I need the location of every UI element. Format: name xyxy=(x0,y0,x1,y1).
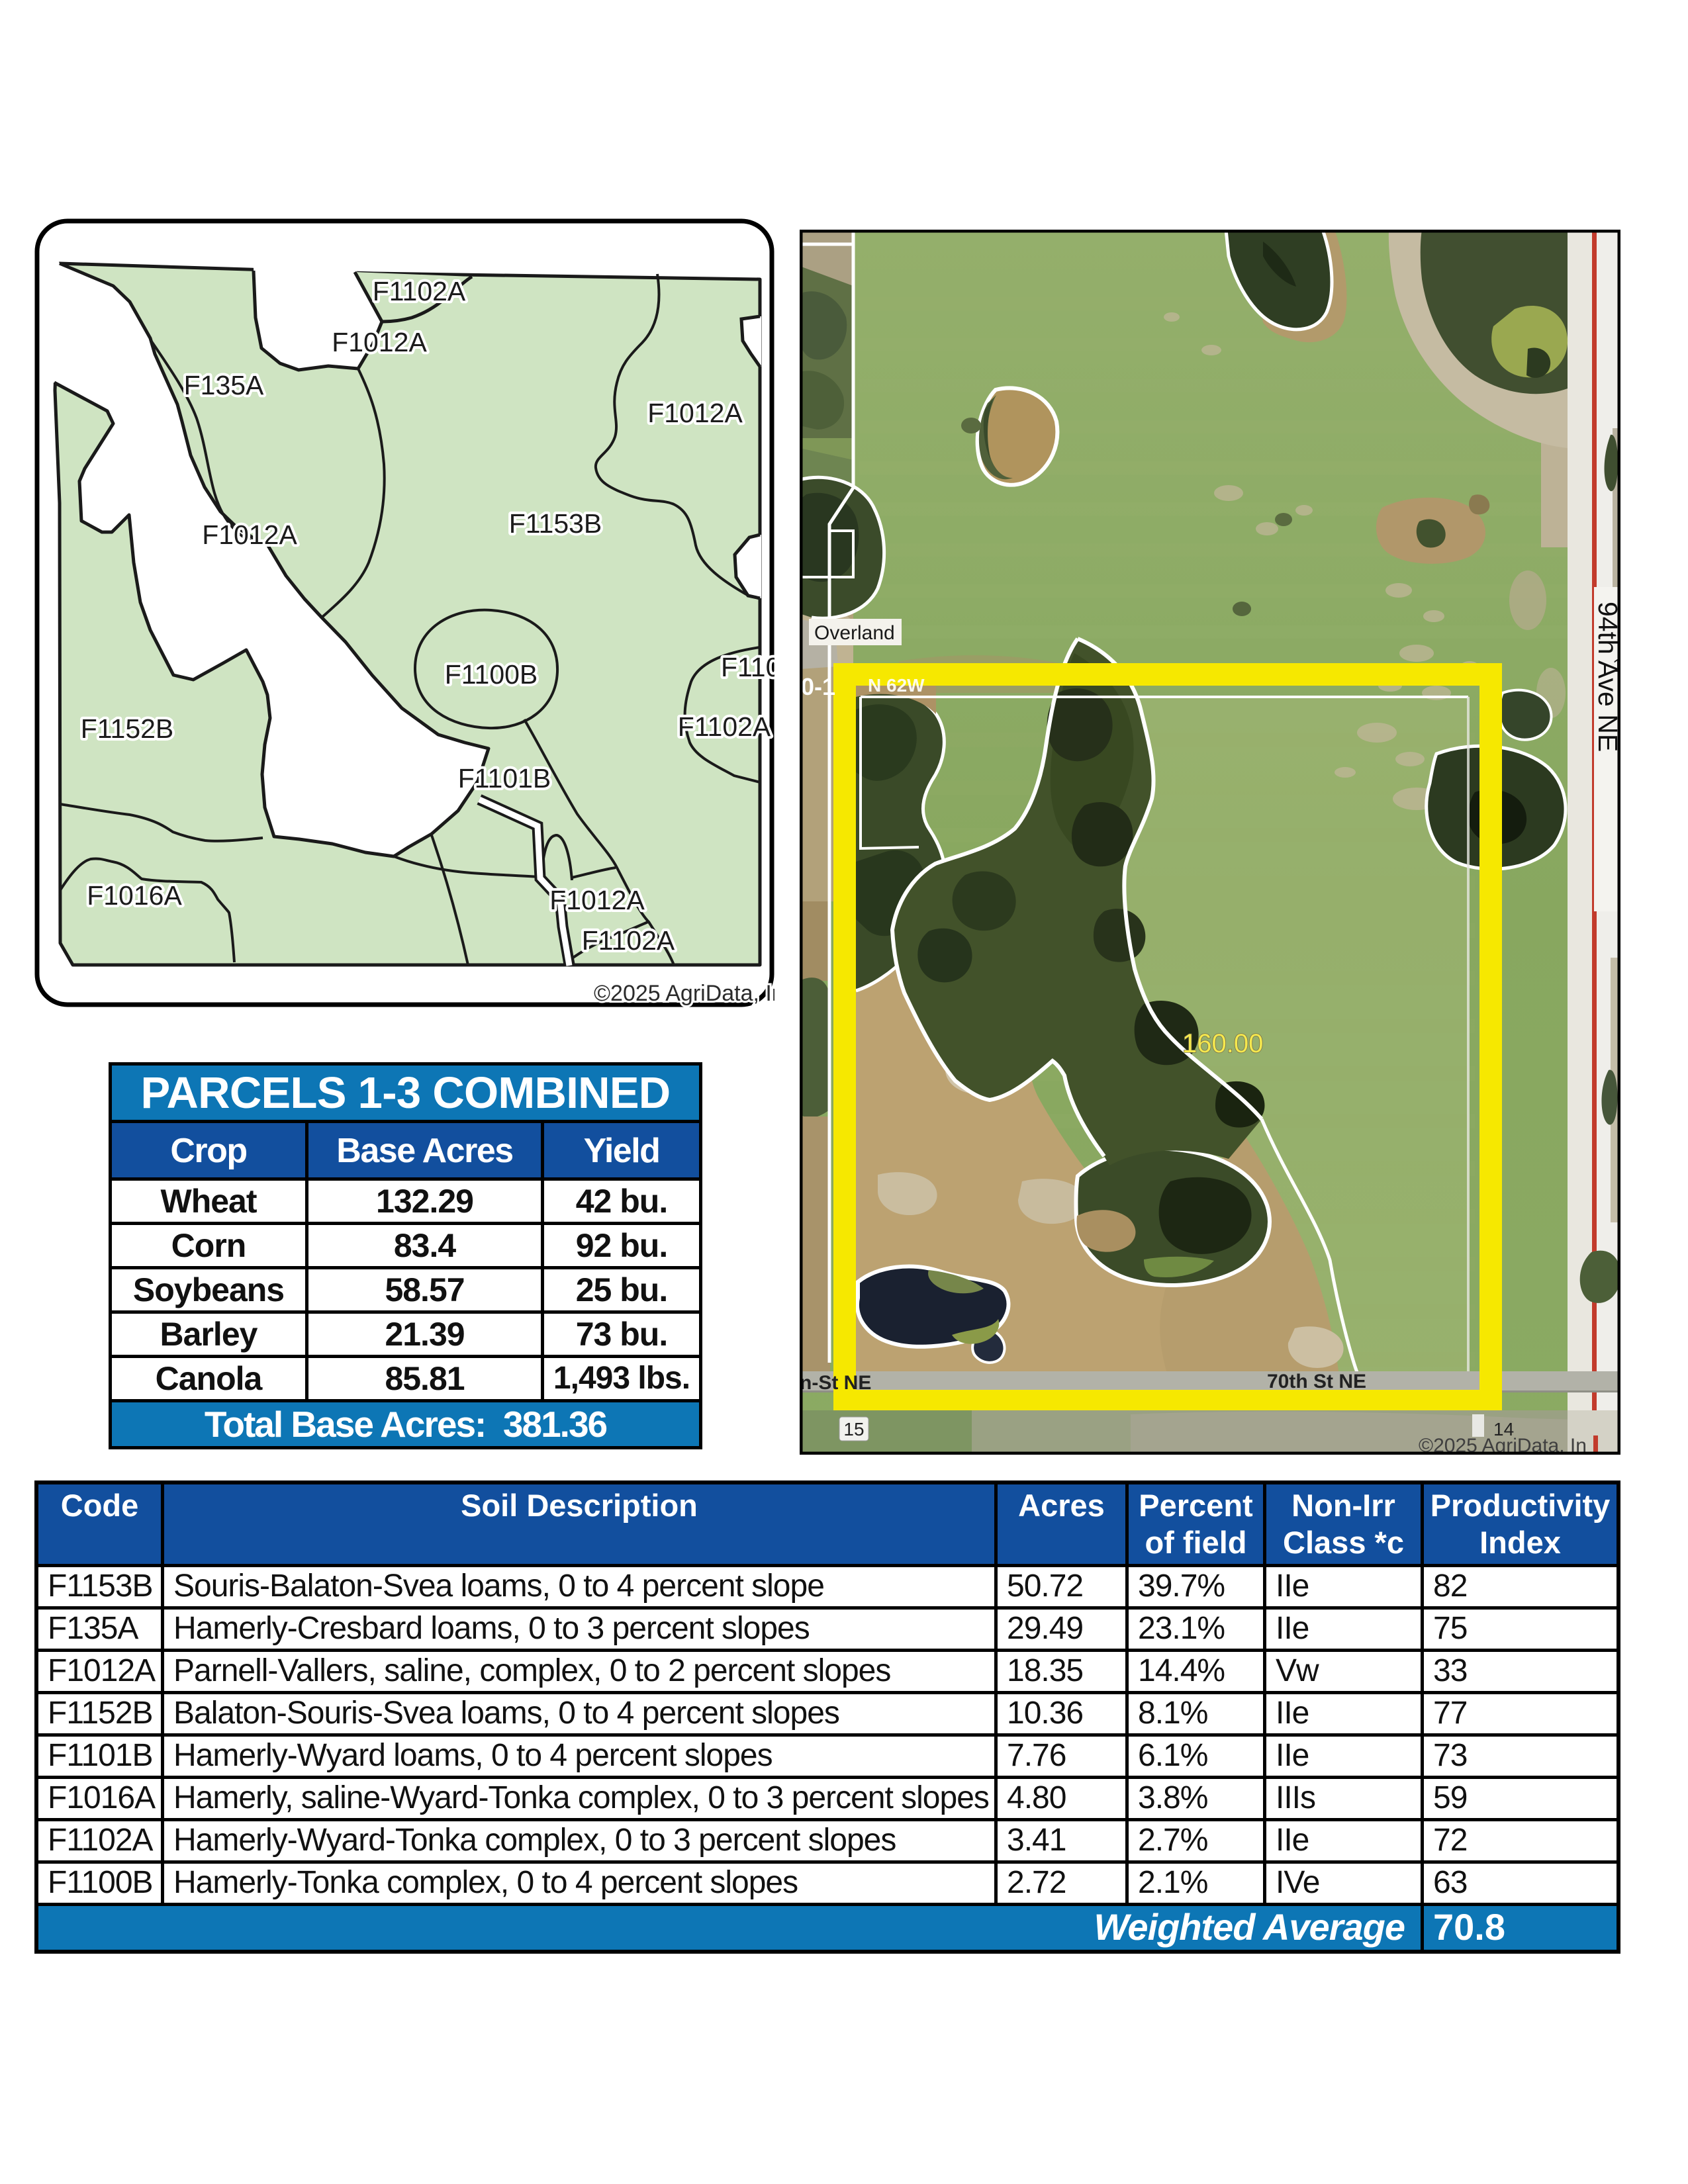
svg-text:F1102A: F1102A xyxy=(678,711,771,742)
svg-text:15: 15 xyxy=(843,1419,864,1439)
svg-text:F1012A: F1012A xyxy=(647,398,743,428)
svg-text:F1012A: F1012A xyxy=(549,885,645,915)
svg-text:F1102A: F1102A xyxy=(373,276,466,306)
svg-text:F1100: F1100 xyxy=(721,652,774,682)
svg-text:F1100B: F1100B xyxy=(445,659,538,690)
svg-text:F1102A: F1102A xyxy=(582,925,675,956)
svg-text:Overland: Overland xyxy=(814,622,895,644)
svg-text:F1153B: F1153B xyxy=(509,508,602,539)
svg-text:©2025 AgriData, In: ©2025 AgriData, In xyxy=(594,981,774,1006)
svg-text:F1012A: F1012A xyxy=(332,327,427,357)
svg-text:F1101B: F1101B xyxy=(458,763,551,794)
svg-text:F1152B: F1152B xyxy=(81,713,174,744)
svg-text:160.00: 160.00 xyxy=(1182,1029,1263,1058)
svg-text:F135A: F135A xyxy=(184,370,264,400)
svg-text:N 62W: N 62W xyxy=(868,675,925,696)
svg-text:F1012A: F1012A xyxy=(202,520,297,550)
svg-text:n-St NE: n-St NE xyxy=(800,1372,871,1394)
svg-text:0-1: 0-1 xyxy=(801,673,835,700)
svg-text:94th Ave NE: 94th Ave NE xyxy=(1593,602,1620,752)
svg-text:70th St NE: 70th St NE xyxy=(1267,1371,1366,1392)
svg-text:F1016A: F1016A xyxy=(87,880,182,911)
